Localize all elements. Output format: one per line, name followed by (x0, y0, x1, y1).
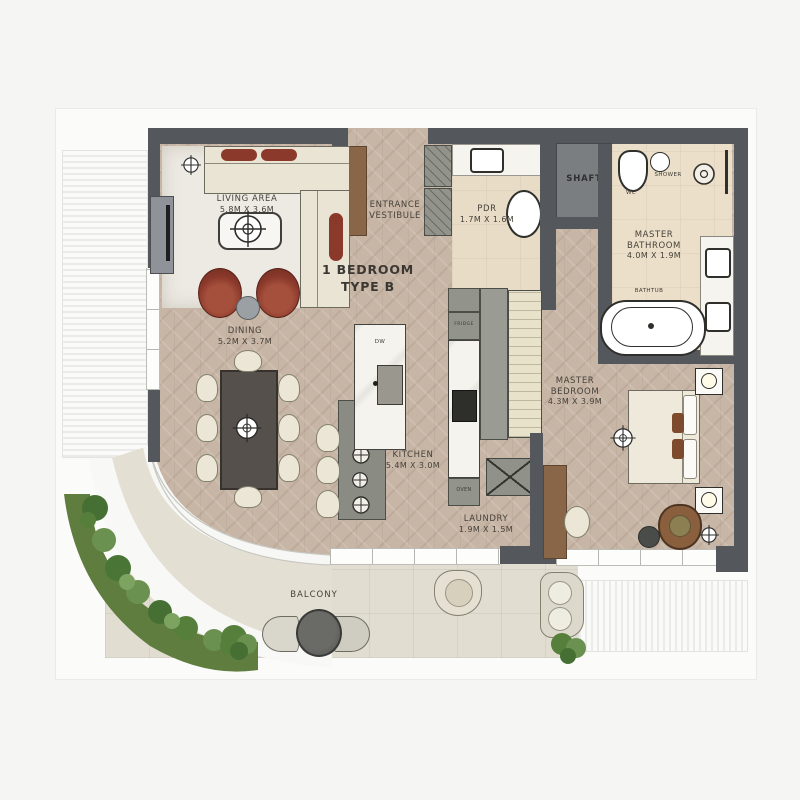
dining-chair (196, 374, 218, 402)
fridge-label: FRIDGE (449, 322, 479, 327)
burner-icon (350, 470, 370, 490)
kitchen-tall-cabinets (480, 288, 508, 440)
dining-chair (196, 454, 218, 482)
dining-chair (278, 414, 300, 442)
oven: OVEN (448, 478, 480, 506)
balcony-plant (214, 616, 266, 664)
living-label: LIVING AREA 5.8M X 3.6M (207, 194, 287, 215)
master-bedroom-label: MASTER BEDROOM 4.3M X 3.9M (539, 376, 611, 407)
plan-title: 1 BEDROOM TYPE B (318, 262, 418, 296)
vanity-sink-2 (705, 302, 731, 332)
wall-bottom-right-corner (716, 546, 748, 572)
balcony-table (296, 609, 342, 657)
laundry-label: LAUNDRY 1.9M X 1.5M (446, 514, 526, 535)
nightstand (695, 368, 723, 395)
dining-chair (234, 486, 262, 508)
cooktop (452, 390, 477, 422)
dishwasher-label: DW (355, 339, 405, 345)
floor-plan: SHAFT FRIDGE OVEN DW (0, 0, 800, 800)
fridge: FRIDGE (448, 312, 480, 340)
wall-top-left (148, 128, 348, 144)
shower-door (725, 150, 728, 194)
balcony-lounge-chair (434, 570, 482, 616)
bedroom-armchair (658, 504, 702, 550)
faucet-icon (373, 381, 378, 386)
shower-head-icon (692, 162, 716, 186)
kitchen-label: KITCHEN 5.4M X 3.0M (378, 450, 448, 471)
nightstand (695, 487, 723, 514)
lounge-chair-red (256, 268, 300, 318)
ceiling-light-icon (231, 412, 263, 444)
sofa-top-section (204, 146, 350, 194)
dining-chair (196, 414, 218, 442)
sofa-pillow-red (221, 149, 257, 161)
wall-pdr-right (540, 128, 556, 310)
dining-chair (234, 350, 262, 372)
sofa-pillow-red (329, 213, 343, 261)
bed-pillow (683, 439, 697, 479)
balcony-chair (262, 616, 300, 652)
master-bathroom-label: MASTER BATHROOM 4.0M X 1.9M (614, 230, 694, 261)
entrance-door-leaf (348, 146, 367, 236)
bathtub-label: BATHTUB (624, 288, 674, 294)
kitchen-cabinet-top (448, 288, 480, 312)
bed-cushion-brown (672, 413, 684, 433)
tv-console (150, 196, 174, 274)
ceiling-light-icon (228, 209, 268, 249)
dining-chair (278, 374, 300, 402)
pantry-shelves (508, 290, 542, 438)
lamp-icon (701, 373, 717, 389)
bar-stool (316, 456, 340, 484)
bathroom-toilet (618, 150, 648, 192)
window-left (146, 268, 160, 390)
pdr-label: PDR 1.7M X 1.6M (452, 204, 522, 225)
island-marble-top: DW (354, 324, 406, 450)
washer-dryer (486, 458, 534, 496)
dining-label: DINING 5.2M X 3.7M (205, 326, 285, 347)
vanity-sink-1 (705, 248, 731, 278)
wall-top-right (428, 128, 748, 144)
ceiling-light-icon (180, 154, 202, 176)
sofa-pillow-red (261, 149, 297, 161)
wc-label: WC (620, 190, 642, 196)
bed (628, 390, 700, 484)
oven-label: OVEN (449, 488, 479, 493)
shower-label: SHOWER (648, 172, 688, 178)
lamp-icon (701, 492, 717, 508)
dining-chair (278, 454, 300, 482)
entrance-closet-upper (424, 145, 452, 187)
tv-icon (166, 205, 170, 261)
wall-right (734, 128, 748, 562)
island-sink (377, 365, 403, 405)
wall-laundry-right (530, 433, 543, 560)
bedroom-dresser (543, 465, 567, 559)
window-dining-balcony (330, 548, 500, 565)
pdr-sink (470, 148, 504, 173)
window-bedroom-south (556, 549, 718, 566)
bed-pillow (683, 395, 697, 435)
ceiling-light-icon (698, 524, 720, 546)
bathroom-basin (650, 152, 670, 172)
balcony-label: BALCONY (274, 590, 354, 601)
ceiling-light-icon (609, 424, 637, 452)
side-table (236, 296, 260, 320)
bathtub (600, 300, 706, 356)
bedroom-stool (638, 526, 660, 548)
desk-chair (564, 506, 590, 538)
entrance-label: ENTRANCE VESTIBULE (360, 200, 430, 221)
bar-stool (316, 424, 340, 452)
burner-icon (350, 494, 372, 516)
bed-cushion-brown (672, 439, 684, 459)
balcony-plant (544, 626, 596, 668)
bar-stool (316, 490, 340, 518)
wall-left-lower (148, 390, 160, 462)
